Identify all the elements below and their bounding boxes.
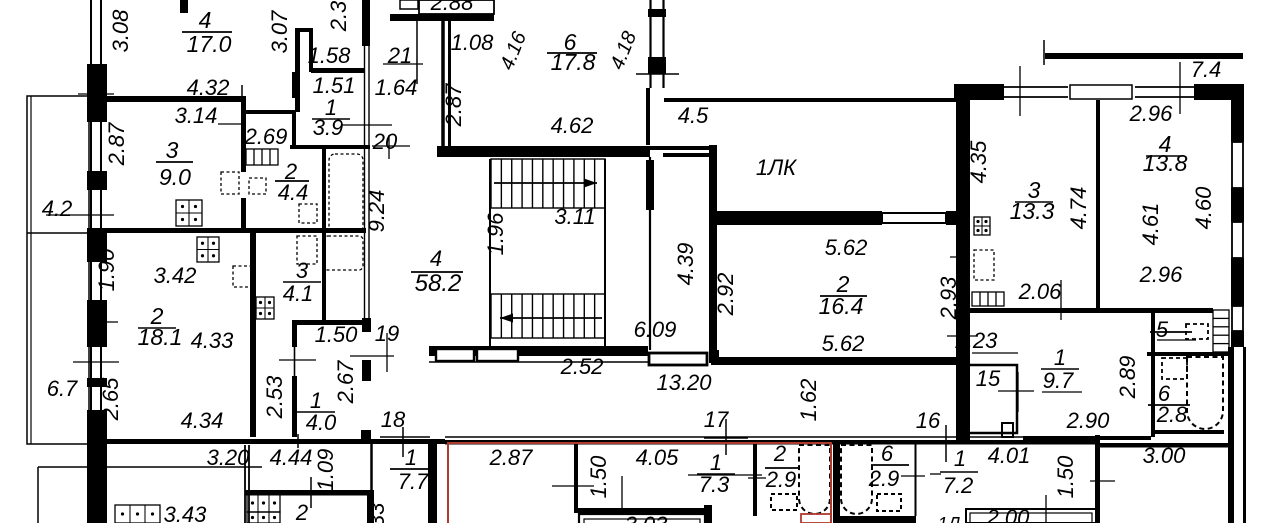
svg-text:3: 3 (296, 258, 309, 283)
svg-text:2.33: 2.33 (364, 502, 389, 523)
svg-text:4.60: 4.60 (1191, 186, 1216, 230)
svg-text:2.87: 2.87 (441, 83, 466, 128)
svg-text:17.0: 17.0 (187, 31, 232, 57)
svg-text:7.7: 7.7 (398, 469, 429, 494)
svg-text:6.7: 6.7 (47, 376, 78, 401)
svg-text:2.9: 2.9 (765, 467, 797, 492)
svg-text:4.39: 4.39 (673, 243, 698, 286)
svg-text:4.2: 4.2 (42, 196, 73, 221)
svg-text:20: 20 (372, 129, 398, 154)
svg-text:3.11: 3.11 (554, 204, 595, 229)
svg-text:17: 17 (704, 407, 729, 432)
svg-text:1.90: 1.90 (94, 248, 119, 292)
svg-text:1.09: 1.09 (313, 449, 338, 492)
svg-text:9.7: 9.7 (1043, 368, 1074, 393)
svg-text:17.8: 17.8 (551, 49, 596, 75)
svg-text:1.62: 1.62 (796, 379, 821, 422)
svg-text:3.43: 3.43 (164, 502, 208, 523)
svg-text:3.42: 3.42 (154, 263, 197, 288)
svg-text:1.96: 1.96 (483, 212, 508, 256)
svg-text:9.0: 9.0 (159, 164, 191, 190)
svg-text:4.33: 4.33 (191, 328, 235, 353)
svg-text:2.96: 2.96 (1139, 262, 1184, 287)
svg-text:2.87: 2.87 (104, 122, 129, 167)
svg-text:2.89: 2.89 (1115, 356, 1140, 400)
svg-text:2: 2 (295, 500, 308, 523)
svg-text:3.9: 3.9 (313, 115, 344, 140)
svg-text:3.00: 3.00 (1143, 443, 1187, 468)
svg-text:1Д: 1Д (938, 514, 961, 523)
svg-text:1: 1 (1054, 345, 1066, 370)
svg-text:1.64: 1.64 (375, 75, 418, 100)
svg-text:2.96: 2.96 (1129, 101, 1174, 126)
svg-text:4.01: 4.01 (988, 443, 1031, 468)
svg-text:2.67: 2.67 (333, 360, 358, 405)
svg-text:3: 3 (166, 137, 179, 163)
svg-text:9.24: 9.24 (364, 190, 389, 233)
svg-text:4.44: 4.44 (270, 445, 313, 470)
svg-text:13.8: 13.8 (1143, 150, 1188, 176)
svg-text:1.50: 1.50 (315, 322, 359, 347)
svg-text:4: 4 (199, 7, 212, 33)
svg-text:1ЛК: 1ЛК (756, 155, 797, 180)
svg-text:5.62: 5.62 (822, 331, 865, 356)
svg-text:4.32: 4.32 (187, 75, 230, 100)
svg-text:18: 18 (381, 407, 406, 432)
svg-text:1.58: 1.58 (308, 43, 352, 68)
svg-text:4.34: 4.34 (181, 408, 224, 433)
svg-text:2.65: 2.65 (98, 377, 123, 422)
svg-text:4: 4 (430, 246, 442, 271)
svg-text:3.08: 3.08 (108, 9, 133, 53)
svg-text:18.1: 18.1 (138, 324, 183, 350)
svg-text:3.14: 3.14 (175, 103, 218, 128)
svg-text:4.1: 4.1 (283, 281, 314, 306)
svg-text:21: 21 (387, 43, 412, 68)
svg-text:1.50: 1.50 (1053, 455, 1078, 499)
svg-text:2.93: 2.93 (936, 276, 961, 321)
svg-text:4.4: 4.4 (278, 180, 309, 205)
svg-text:2.8: 2.8 (1156, 402, 1188, 427)
svg-text:2.52: 2.52 (560, 354, 604, 379)
svg-text:4.74: 4.74 (1066, 187, 1091, 230)
svg-text:4.35: 4.35 (966, 140, 991, 184)
svg-text:6.09: 6.09 (634, 317, 677, 342)
svg-text:2.00: 2.00 (986, 505, 1031, 523)
svg-text:7.3: 7.3 (699, 472, 730, 497)
svg-text:2.06: 2.06 (1018, 279, 1063, 304)
svg-text:3.03: 3.03 (625, 512, 669, 523)
svg-text:1.50: 1.50 (586, 455, 611, 499)
svg-text:2.53: 2.53 (262, 375, 287, 420)
svg-text:2: 2 (773, 441, 786, 466)
svg-text:19: 19 (375, 321, 399, 346)
svg-text:2.3: 2.3 (326, 0, 351, 32)
svg-text:16.4: 16.4 (819, 293, 864, 319)
svg-text:4.62: 4.62 (551, 113, 594, 138)
svg-text:2.87: 2.87 (489, 445, 534, 470)
svg-text:13.20: 13.20 (656, 370, 712, 395)
svg-text:3.07: 3.07 (267, 10, 292, 54)
svg-text:2.69: 2.69 (244, 124, 288, 149)
svg-text:58.2: 58.2 (415, 270, 462, 297)
svg-text:15: 15 (976, 366, 1001, 391)
svg-text:7.2: 7.2 (943, 473, 974, 498)
svg-text:2.92: 2.92 (713, 273, 738, 317)
svg-text:6: 6 (881, 441, 894, 466)
svg-text:1: 1 (405, 445, 417, 470)
svg-text:7.4: 7.4 (1191, 57, 1222, 82)
svg-text:3.20: 3.20 (207, 445, 251, 470)
svg-text:4.0: 4.0 (306, 410, 337, 435)
svg-text:1.08: 1.08 (451, 30, 495, 55)
svg-text:4.05: 4.05 (636, 445, 680, 470)
svg-text:13.3: 13.3 (1010, 198, 1055, 224)
svg-text:5.62: 5.62 (825, 235, 868, 260)
svg-text:2.9: 2.9 (868, 466, 900, 491)
svg-text:2.88: 2.88 (430, 0, 475, 15)
svg-text:4.5: 4.5 (678, 103, 709, 128)
svg-text:1: 1 (954, 446, 966, 471)
svg-text:1.23: 1.23 (955, 328, 999, 353)
svg-text:16: 16 (916, 408, 941, 433)
svg-text:2.90: 2.90 (1066, 408, 1111, 433)
svg-text:5: 5 (1156, 317, 1169, 342)
svg-text:4.61: 4.61 (1138, 203, 1163, 246)
